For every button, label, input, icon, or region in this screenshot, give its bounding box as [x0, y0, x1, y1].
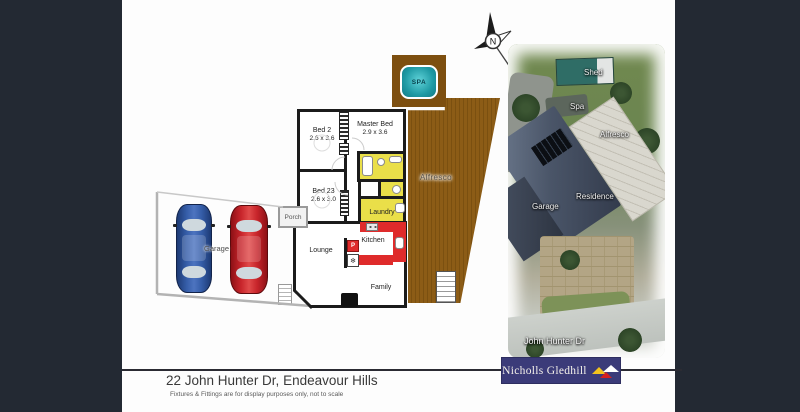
plan-linework [0, 0, 800, 412]
aerial-garage-label: Garage [532, 202, 559, 211]
agency-logo: Nicholls Gledhill [502, 358, 620, 383]
tree-blob [618, 328, 642, 352]
address-title: 22 John Hunter Dr, Endeavour Hills [166, 373, 378, 388]
aerial-street-label: John Hunter Dr [524, 336, 585, 346]
garage-label: Garage [204, 244, 229, 253]
compass-n-label: N [490, 37, 497, 47]
aerial-shed-label: Shed [584, 68, 603, 77]
aerial-residence-label: Residence [576, 192, 614, 201]
flyer-page: SPA Alfresco Bed 2 2.6 x 3.6 Master Bed … [0, 0, 800, 412]
aerial-photo: Shed Spa Alfresco Residence Garage John … [508, 44, 665, 358]
disclaimer-text: Fixtures & Fittings are for display purp… [170, 391, 343, 398]
agency-name: Nicholls Gledhill [502, 365, 587, 377]
mountains-logo-icon [592, 363, 620, 378]
aerial-alfresco-label: Alfresco [600, 130, 629, 139]
aerial-spa-label: Spa [570, 102, 584, 111]
tree-blob [560, 250, 580, 270]
